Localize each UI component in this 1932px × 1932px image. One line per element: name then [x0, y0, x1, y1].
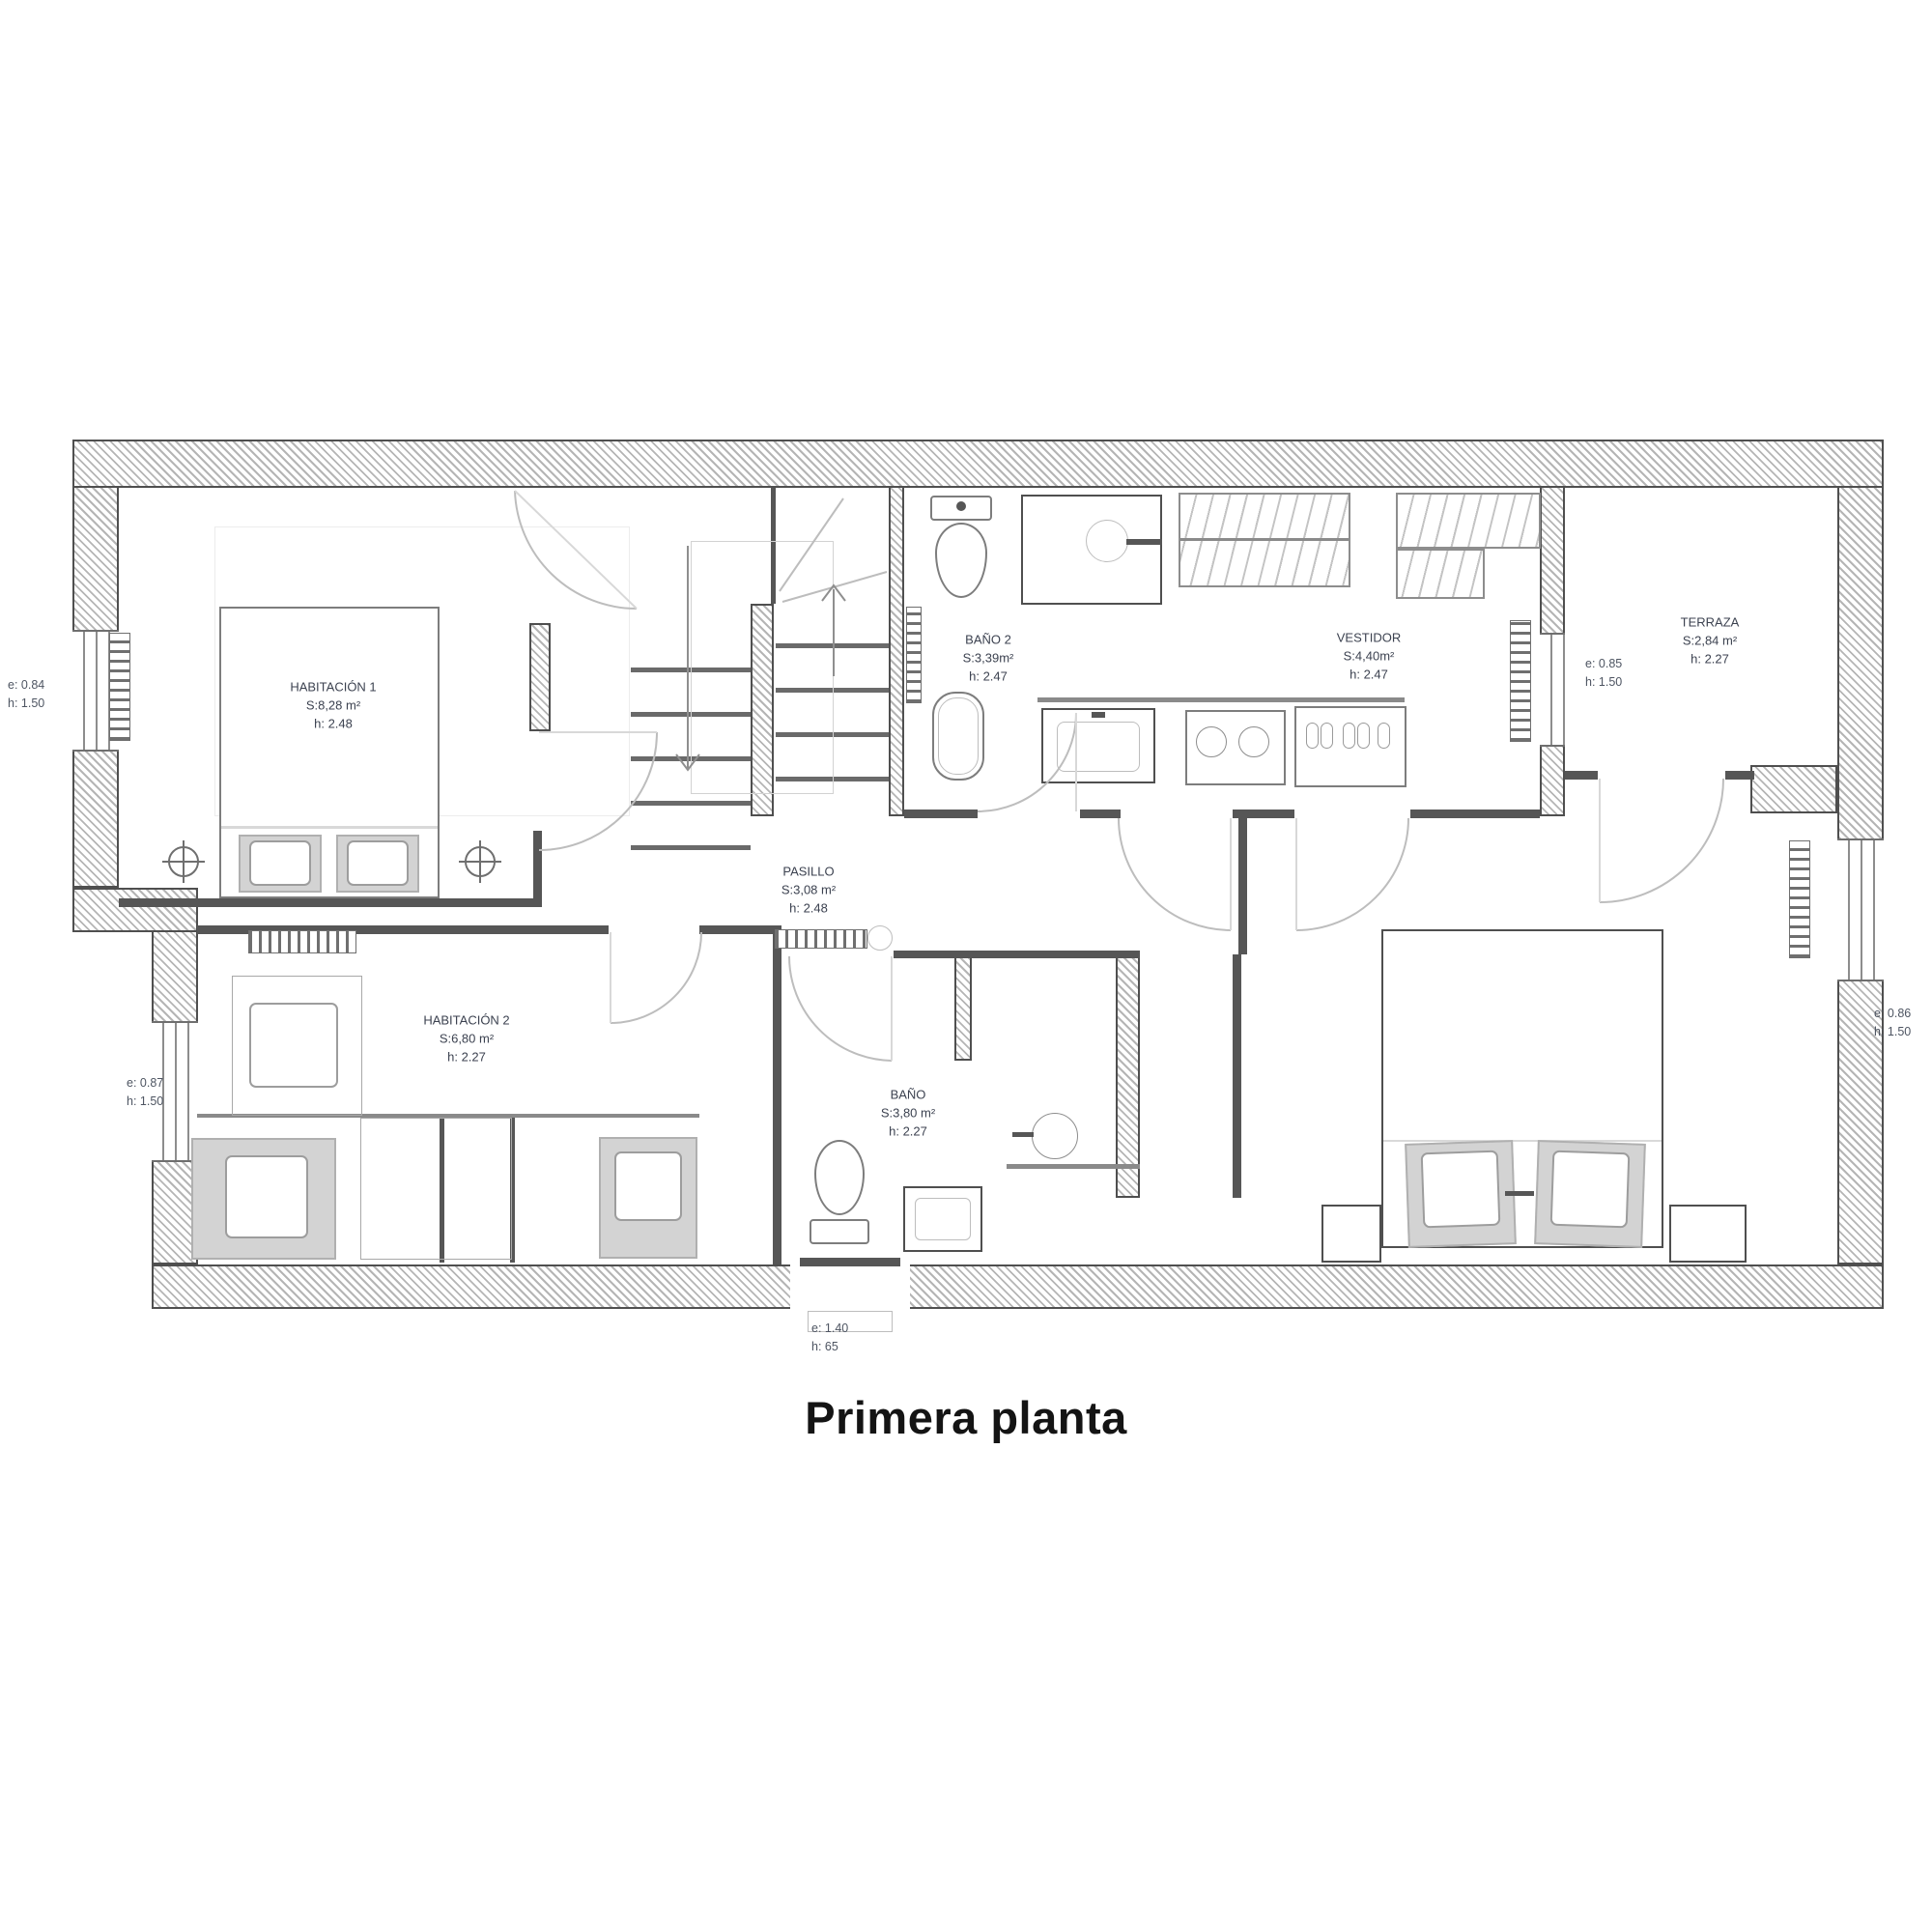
- dim-window-left-top: e: 0.84 h: 1.50: [8, 676, 44, 713]
- room-area: S:6,80 m²: [440, 1032, 494, 1046]
- floor-plan-page: HABITACIÓN 1 S:8,28 m² h: 2.48 BAÑO 2 S:…: [0, 0, 1932, 1932]
- room-label-habitacion-1: HABITACIÓN 1 S:8,28 m² h: 2.48: [290, 679, 376, 734]
- dim-width: e: 0.84: [8, 676, 44, 695]
- room-area: S:2,84 m²: [1683, 634, 1737, 648]
- door-arc-bano2: [978, 713, 1076, 811]
- dim-width: e: 1.40: [811, 1320, 848, 1338]
- room-area: S:4,40m²: [1344, 649, 1395, 664]
- room-height: h: 2.47: [1350, 667, 1388, 681]
- door-arc-terraza: [1600, 779, 1723, 902]
- door-arc-vestidor: [1119, 818, 1231, 930]
- room-height: h: 2.27: [1690, 651, 1729, 666]
- room-area: S:8,28 m²: [306, 698, 360, 713]
- stair-winder-1: [780, 498, 843, 591]
- door-arc-hab1-pasillo: [539, 732, 657, 850]
- dim-window-left-bottom: e: 0.87 h: 1.50: [127, 1074, 163, 1111]
- room-name: VESTIDOR: [1337, 631, 1401, 645]
- ceiling-light-cross: [459, 840, 501, 883]
- dim-height: h: 1.50: [1874, 1023, 1911, 1041]
- room-area: S:3,80 m²: [881, 1106, 935, 1121]
- dim-window-bottom: e: 1.40 h: 65: [811, 1320, 848, 1356]
- room-label-terraza: TERRAZA S:2,84 m² h: 2.27: [1681, 614, 1740, 669]
- dim-height: h: 1.50: [8, 695, 44, 713]
- room-height: h: 2.48: [789, 900, 828, 915]
- room-height: h: 2.27: [447, 1049, 486, 1064]
- stair-arrow-down: [676, 546, 699, 770]
- door-arc-hab2: [611, 932, 701, 1023]
- dim-window-right: e: 0.86 h: 1.50: [1874, 1005, 1911, 1041]
- dim-width: e: 0.87: [127, 1074, 163, 1093]
- dim-window-terraza: e: 0.85 h: 1.50: [1585, 655, 1622, 692]
- door-arc-bedroom: [1296, 818, 1408, 930]
- room-name: HABITACIÓN 2: [423, 1013, 509, 1028]
- room-label-vestidor: VESTIDOR S:4,40m² h: 2.47: [1337, 630, 1401, 685]
- room-name: PASILLO: [782, 865, 834, 879]
- dim-height: h: 1.50: [1585, 673, 1622, 692]
- room-name: BAÑO 2: [965, 633, 1011, 647]
- room-name: TERRAZA: [1681, 615, 1740, 630]
- room-label-habitacion-2: HABITACIÓN 2 S:6,80 m² h: 2.27: [423, 1012, 509, 1067]
- room-height: h: 2.47: [969, 668, 1008, 683]
- door-arc-bano: [789, 956, 892, 1061]
- room-area: S:3,39m²: [963, 651, 1014, 666]
- room-height: h: 2.48: [314, 716, 353, 730]
- ceiling-light-cross: [162, 840, 205, 883]
- page-title: Primera planta: [0, 1391, 1932, 1444]
- stair-arrow-up: [822, 585, 845, 676]
- annotation-layer: [0, 0, 1932, 1932]
- dim-height: h: 1.50: [127, 1093, 163, 1111]
- room-name: BAÑO: [891, 1088, 926, 1102]
- dim-height: h: 65: [811, 1338, 848, 1356]
- dim-width: e: 0.86: [1874, 1005, 1911, 1023]
- room-label-pasillo: PASILLO S:3,08 m² h: 2.48: [781, 864, 836, 919]
- room-label-bano-2: BAÑO 2 S:3,39m² h: 2.47: [963, 632, 1014, 687]
- room-name: HABITACIÓN 1: [290, 680, 376, 695]
- room-height: h: 2.27: [889, 1123, 927, 1138]
- room-label-bano: BAÑO S:3,80 m² h: 2.27: [881, 1087, 935, 1142]
- dim-width: e: 0.85: [1585, 655, 1622, 673]
- room-area: S:3,08 m²: [781, 883, 836, 897]
